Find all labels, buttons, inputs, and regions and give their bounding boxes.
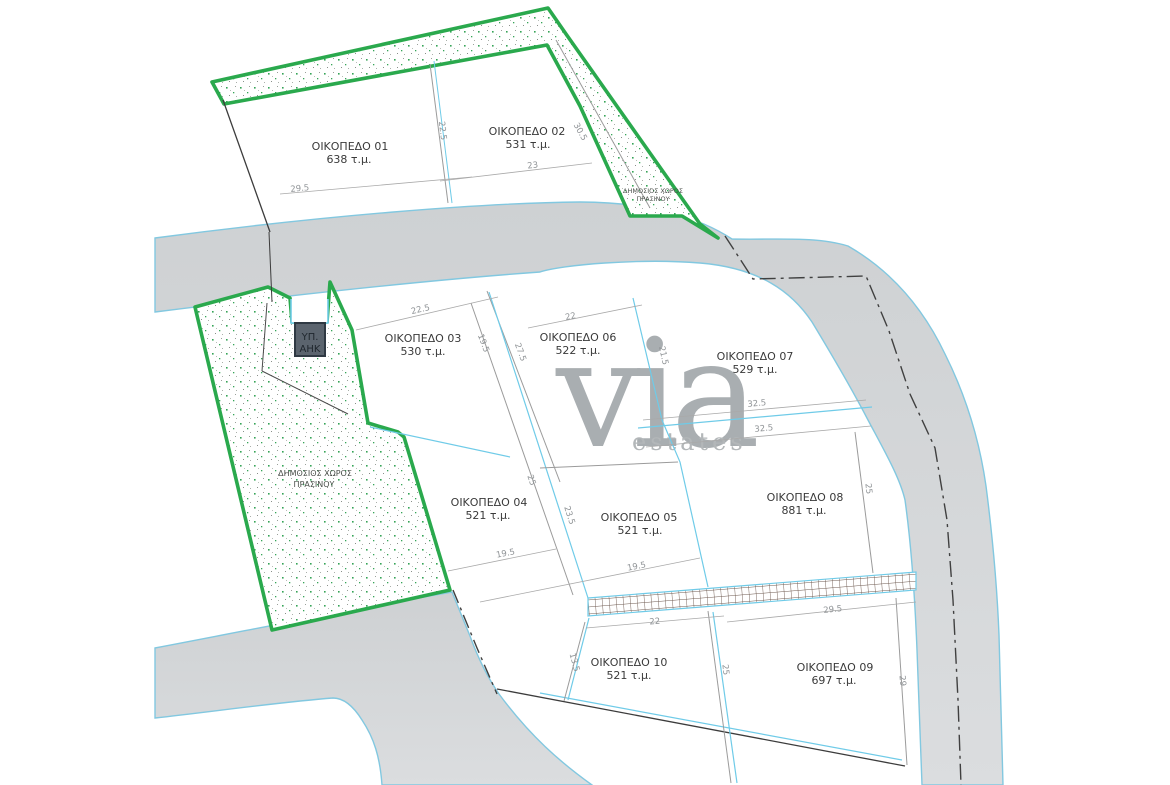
plot-04-area: 521 τ.μ.	[465, 509, 510, 522]
plot-04-name: ΟΙΚΟΠΕΔΟ 04	[451, 496, 528, 509]
plot-03-name: ΟΙΚΟΠΕΔΟ 03	[385, 332, 462, 345]
site-boundary-bottom	[497, 689, 905, 766]
site-boundary-left	[223, 100, 270, 232]
plot-08-area: 881 τ.μ.	[781, 504, 826, 517]
plot-10-label: ΟΙΚΟΠΕΔΟ 10 521 τ.μ.	[591, 656, 668, 682]
plot-01-area: 638 τ.μ.	[326, 153, 371, 166]
dim-label: 29	[897, 675, 908, 687]
plot-06-name: ΟΙΚΟΠΕΔΟ 06	[540, 331, 617, 344]
plot-09-label: ΟΙΚΟΠΕΔΟ 09 697 τ.μ.	[797, 661, 874, 687]
dim-label: 19.5	[475, 333, 491, 354]
plot-08-label: ΟΙΚΟΠΕΔΟ 08 881 τ.μ.	[767, 491, 844, 517]
dim-label: 29.5	[290, 183, 310, 195]
dim-label: 32.5	[754, 423, 774, 435]
plot-03-label: ΟΙΚΟΠΕΔΟ 03 530 τ.μ.	[385, 332, 462, 358]
divider-10-09-gray	[708, 611, 731, 783]
green-left-label-1: ΔΗΜΟΣΙΟΣ ΧΩΡΟΣ	[278, 469, 352, 478]
dim-label: 32.5	[747, 398, 767, 410]
watermark-suffix: estates	[632, 428, 747, 456]
lower-road	[155, 592, 592, 785]
site-plan: via estates	[0, 0, 1170, 785]
dim-label: 22	[649, 617, 661, 628]
dim-label: 22.5	[410, 303, 431, 317]
dim-label: 19.5	[495, 547, 515, 560]
plot-05-area: 521 τ.μ.	[617, 524, 662, 537]
plot-05-label: ΟΙΚΟΠΕΔΟ 05 521 τ.μ.	[601, 511, 678, 537]
footpath-strip	[588, 572, 916, 616]
plot-10-area: 521 τ.μ.	[606, 669, 651, 682]
green-area-top	[212, 8, 718, 238]
dim-label: 30.5	[571, 121, 589, 142]
substation-label-2: ΑΗΚ	[300, 344, 321, 355]
plot-01-name: ΟΙΚΟΠΕΔΟ 01	[312, 140, 389, 153]
plot-05-name: ΟΙΚΟΠΕΔΟ 05	[601, 511, 678, 524]
plot-07-area: 529 τ.μ.	[732, 363, 777, 376]
plot-04-label: ΟΙΚΟΠΕΔΟ 04 521 τ.μ.	[451, 496, 528, 522]
dim-label: 25	[719, 664, 730, 676]
green-top-label-1: ΔΗΜΟΣΙΟΣ ΧΩΡΟΣ	[623, 187, 683, 195]
plot-02-area: 531 τ.μ.	[505, 138, 550, 151]
plot-09-area: 697 τ.μ.	[811, 674, 856, 687]
plot-08-right-line	[855, 432, 873, 573]
green-left-label-2: ΠΡΑΣΙΝΟΥ	[294, 480, 335, 489]
dim-label: 25	[524, 474, 537, 487]
plot-07-name: ΟΙΚΟΠΕΔΟ 07	[717, 350, 794, 363]
dim-label: 22	[564, 311, 577, 323]
dim-label: 22.5	[436, 121, 448, 141]
plot-boundary-bottom-cyan	[540, 693, 902, 760]
plot-06-area: 522 τ.μ.	[555, 344, 600, 357]
plot-02-label: ΟΙΚΟΠΕΔΟ 02 531 τ.μ.	[489, 125, 566, 151]
divider-10-09-cyan	[713, 612, 737, 783]
plot-03-area: 530 τ.μ.	[400, 345, 445, 358]
plot-09-name: ΟΙΚΟΠΕΔΟ 09	[797, 661, 874, 674]
dim-label: 19.5	[626, 560, 646, 573]
plot-10-name: ΟΙΚΟΠΕΔΟ 10	[591, 656, 668, 669]
site-plan-drawing: via estates	[0, 0, 1170, 785]
dim-label: 25	[862, 483, 873, 495]
plot-02-name: ΟΙΚΟΠΕΔΟ 02	[489, 125, 566, 138]
dim-label: 23	[527, 160, 539, 171]
plot-01-label: ΟΙΚΟΠΕΔΟ 01 638 τ.μ.	[312, 140, 389, 166]
substation-label-1: ΥΠ.	[301, 332, 319, 343]
dim-label: 27.5	[512, 342, 528, 363]
green-top-label-2: ΠΡΑΣΙΝΟΥ	[636, 195, 669, 203]
substation-label: ΥΠ. ΑΗΚ	[300, 332, 321, 355]
dim-label: 29.5	[823, 604, 843, 616]
plot-08-name: ΟΙΚΟΠΕΔΟ 08	[767, 491, 844, 504]
plot-02-right-line	[556, 40, 650, 208]
substation-notch	[291, 299, 328, 323]
